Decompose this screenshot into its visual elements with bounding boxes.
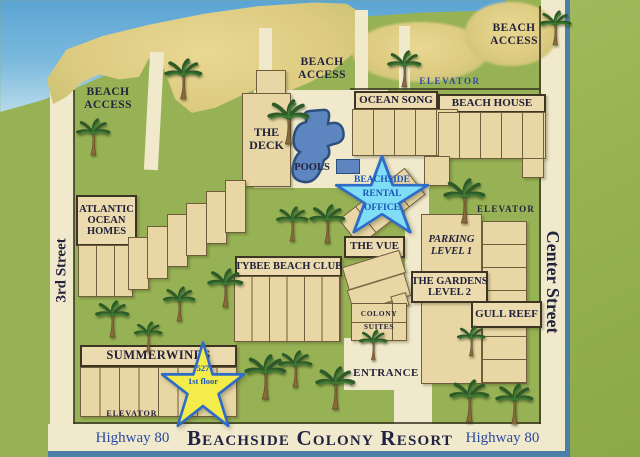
beach-path [144, 52, 164, 171]
office-line2: RENTAL [346, 188, 418, 202]
beach-house-name: BEACH HOUSE [452, 98, 532, 110]
street-label-3rd: 3rd Street [54, 220, 71, 320]
building-atlantic-step [206, 191, 227, 244]
palm-tree-icon [277, 348, 313, 390]
beach-access-label-center: BEACH ACCESS [290, 56, 354, 82]
palm-tree-icon [386, 48, 422, 90]
gardens-line2: LEVEL 2 [428, 287, 471, 298]
palm-tree-icon [494, 382, 534, 426]
palm-tree-icon [456, 324, 486, 358]
office-star-label: BEACHSIDE RENTAL OFFICE [346, 174, 418, 215]
building-tybee-units [234, 276, 341, 342]
tybee-name: TYBEE BEACH CLUB [235, 261, 342, 272]
building-atlantic-step [167, 214, 188, 267]
atlantic-line1: ATLANTIC [79, 204, 134, 215]
unit-number: 527 [172, 362, 234, 375]
parking-line1: PARKING [423, 234, 480, 246]
elevator-label-bottom: ELEVATOR [100, 410, 164, 419]
office-line3: OFFICE [346, 202, 418, 216]
building-beach-house-wing [522, 158, 544, 178]
palm-tree-icon [162, 284, 196, 324]
atlantic-line3: HOMES [87, 226, 126, 237]
elevator-label-top: ELEVATOR [418, 76, 482, 86]
palm-tree-icon [163, 56, 203, 102]
atlantic-line2: OCEAN [88, 215, 126, 226]
gardens-line1: THE GARDENS [411, 276, 487, 287]
building-the-deck-annex [256, 70, 286, 95]
building-beach-house-units [438, 112, 546, 159]
office-line1: BEACHSIDE [346, 174, 418, 188]
building-gardens-label: THE GARDENS LEVEL 2 [411, 271, 488, 303]
palm-tree-icon [448, 378, 490, 424]
building-atlantic-step [186, 203, 207, 256]
gull-reef-name: GULL REEF [475, 309, 538, 321]
building-atlantic-step [225, 180, 246, 233]
highway-label-right: Highway 80 [455, 430, 550, 447]
beach-path [355, 10, 368, 92]
beach-access-line2: ACCESS [482, 35, 546, 48]
parking-label: PARKING LEVEL 1 [423, 234, 480, 258]
beach-access-line1: BEACH [290, 56, 354, 69]
palm-tree-icon [266, 96, 310, 148]
beach-access-label-west: BEACH ACCESS [76, 86, 140, 112]
highway-label-left: Highway 80 [85, 430, 180, 447]
building-atlantic-step [147, 226, 168, 279]
building-atlantic-step [128, 237, 149, 290]
colony-line1: COLONY [352, 310, 406, 318]
building-atlantic-units [78, 245, 133, 297]
palm-tree-icon [133, 320, 163, 354]
palm-tree-icon [442, 176, 486, 226]
beach-access-line2: ACCESS [76, 99, 140, 112]
palm-tree-icon [308, 202, 346, 246]
building-tybee-label: TYBEE BEACH CLUB [235, 256, 342, 277]
unit-star-label: 527 1st floor [172, 362, 234, 388]
beach-access-label-east: BEACH ACCESS [482, 22, 546, 48]
palm-tree-icon [75, 116, 111, 158]
ocean-song-name: OCEAN SONG [359, 95, 433, 107]
map-border-right [539, 6, 541, 424]
beach-access-line2: ACCESS [290, 69, 354, 82]
palm-tree-icon [206, 266, 244, 310]
highway-blue-border [48, 451, 570, 457]
pools-label: POOLS [290, 162, 334, 174]
beach-access-line1: BEACH [482, 22, 546, 35]
palm-tree-icon [358, 328, 388, 362]
palm-tree-icon [538, 8, 572, 48]
entrance-label: ENTRANCE [350, 367, 422, 379]
building-ocean-song-label: OCEAN SONG [354, 91, 438, 110]
palm-tree-icon [94, 298, 130, 340]
entrance-road [394, 384, 432, 424]
map-border-top [350, 88, 540, 90]
resort-map: BEACH ACCESS BEACH ACCESS BEACH ACCESS E… [0, 0, 640, 457]
parking-line2: LEVEL 1 [423, 246, 480, 258]
palm-tree-icon [275, 204, 309, 244]
unit-floor: 1st floor [172, 375, 234, 388]
street-label-center: Center Street [543, 222, 563, 342]
palm-tree-icon [314, 364, 356, 412]
resort-title: Beachside Colony Resort [180, 427, 460, 451]
grass-right [570, 0, 640, 457]
beach-access-line1: BEACH [76, 86, 140, 99]
